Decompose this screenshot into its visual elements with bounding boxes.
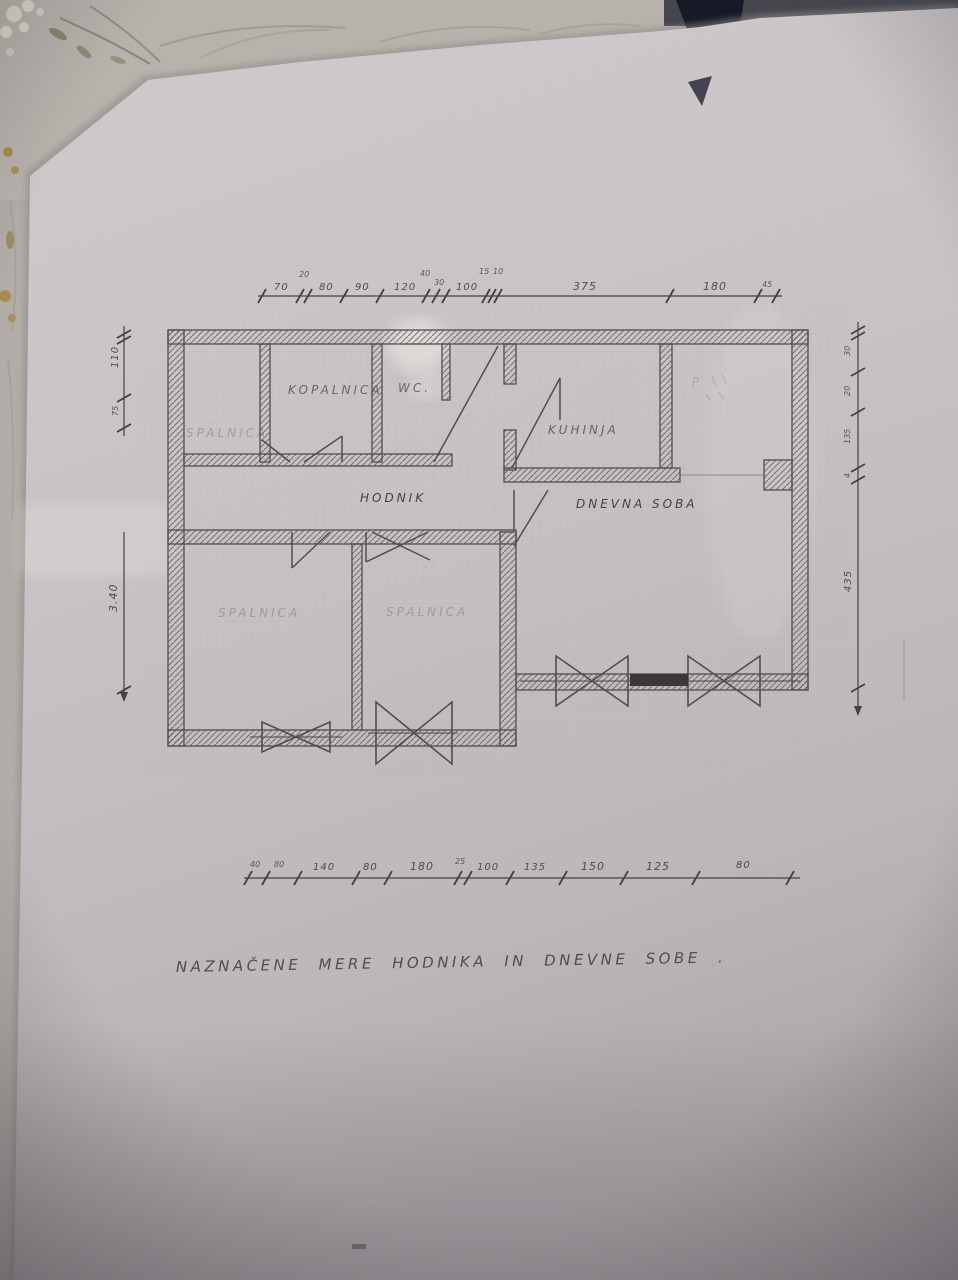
photo-of-floorplan: 70 20 80 90 120 40 30 100 15 10 375 180 … (0, 0, 958, 1280)
floorplan-photo-svg: 70 20 80 90 120 40 30 100 15 10 375 180 … (0, 0, 958, 1280)
bottom-shade (0, 1020, 958, 1280)
